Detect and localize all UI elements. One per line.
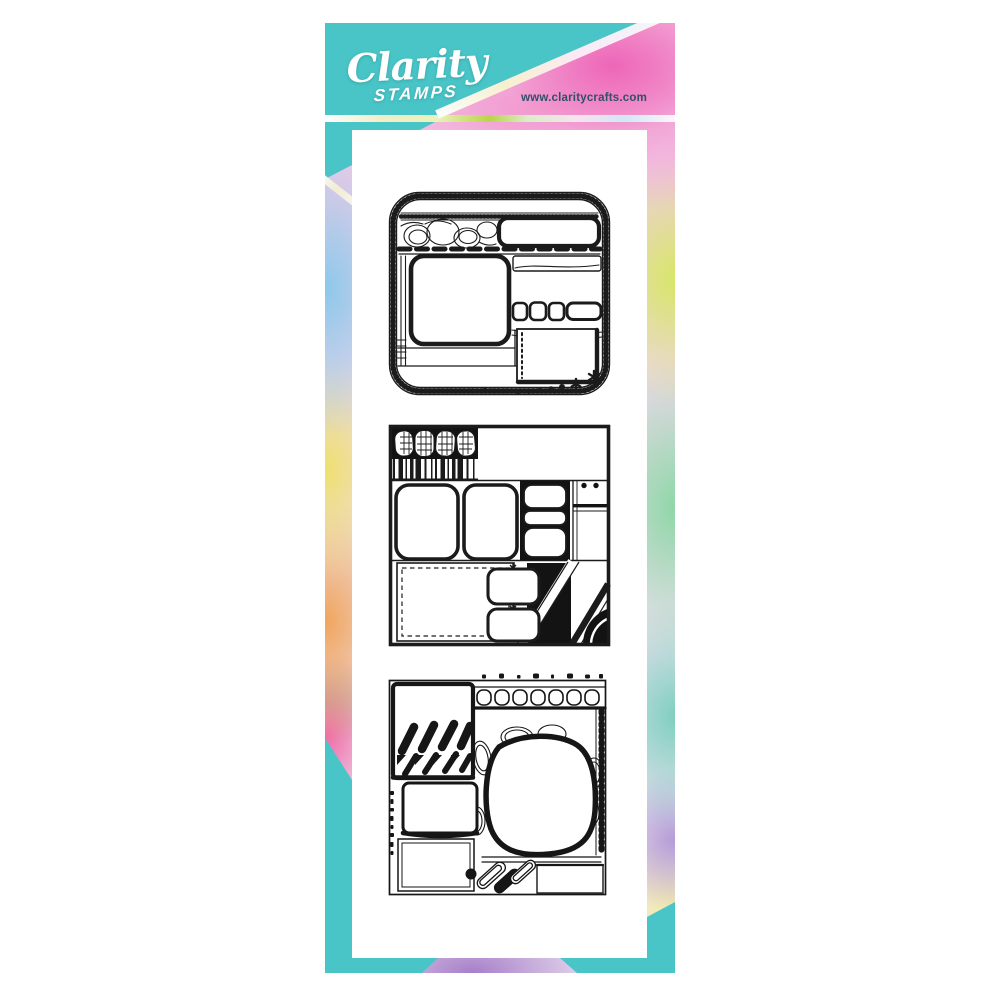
dot-row [482,674,603,679]
plaid-pebble-header [392,428,478,459]
stamp-design-1 [387,190,612,402]
clarity-stamps-logo: Clarity STAMPS [346,41,485,107]
holographic-horizontal-stripe [325,115,675,122]
stamp-design-1-art [387,190,612,402]
brush-stroke-panel [393,684,473,778]
tab-row [513,303,601,321]
bottom-left-box [398,839,474,891]
large-photo-frame [411,256,509,344]
label-box [499,218,599,246]
photo-frame-left [396,485,458,559]
stamp-sheet [352,130,647,958]
bottom-right-box [537,865,603,893]
photo-frame-center [464,485,517,559]
website-url: www.claritycrafts.com [521,92,647,104]
stamp-design-2-art [387,423,612,648]
stamp-design-3-art [387,673,612,901]
stamp-design-2 [387,423,612,648]
stamp-design-3 [387,673,612,901]
stamp-set-backing-card: Clarity STAMPS www.claritycrafts.com [325,23,675,973]
tab-stack-on-black [520,481,570,560]
product-photo-canvas: Clarity STAMPS www.claritycrafts.com [0,0,1000,1000]
mid-photo-frame [403,783,477,836]
dotted-photo-block [517,329,597,382]
banner [513,256,601,271]
linked-mini-frames [488,563,539,641]
photo-blob [486,736,595,854]
